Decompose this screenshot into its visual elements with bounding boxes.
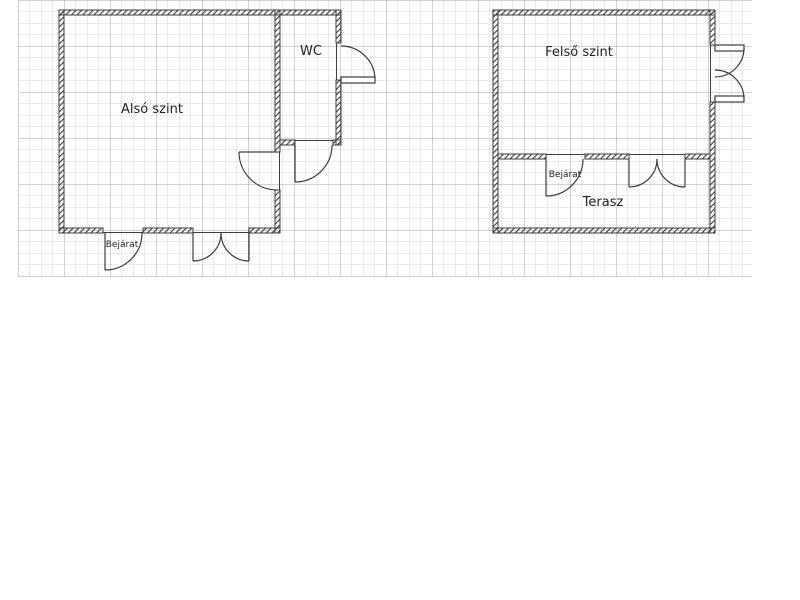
- wall-segment: [336, 80, 341, 145]
- grid-major: [18, 0, 752, 277]
- wall-segment: [336, 10, 341, 43]
- door-leaf: [715, 45, 744, 51]
- floorplan-canvas: Alsó szint WC Bejárat: [0, 0, 800, 600]
- wall-segment: [710, 102, 715, 233]
- wall-segment: [275, 10, 280, 152]
- wall-segment: [275, 190, 280, 233]
- wall-segment: [710, 10, 715, 45]
- wall-segment: [143, 228, 193, 233]
- room-label-also-szint: Alsó szint: [121, 102, 183, 117]
- wall-segment: [585, 154, 629, 159]
- wall-segment: [493, 10, 715, 15]
- room-label-wc: WC: [300, 44, 322, 59]
- entrance-label-lower: Bejárat: [106, 240, 139, 250]
- door-leaf: [341, 77, 375, 83]
- floorplan-page: Alsó szint WC Bejárat: [0, 0, 800, 600]
- wall-segment: [59, 10, 64, 233]
- door-leaf: [715, 96, 744, 102]
- wall-segment: [59, 10, 341, 15]
- entrance-label-upper: Bejárat: [549, 170, 582, 180]
- wall-segment: [493, 228, 715, 233]
- wall-segment: [493, 10, 498, 233]
- wall-segment: [59, 228, 103, 233]
- wall-segment: [498, 154, 546, 159]
- room-label-felso-szint: Felső szint: [545, 45, 613, 60]
- graph-paper-grid: [18, 0, 752, 277]
- wall-segment: [685, 154, 710, 159]
- room-label-terasz: Terasz: [582, 195, 624, 210]
- wall-segment: [280, 140, 295, 145]
